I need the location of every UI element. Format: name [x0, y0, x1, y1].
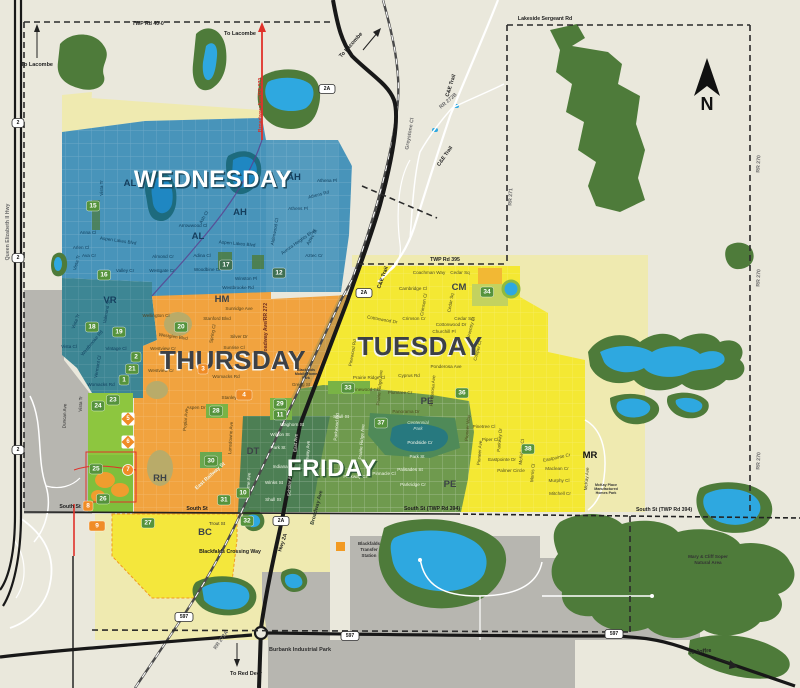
- svg-text:2A: 2A: [278, 518, 285, 524]
- area-code-bc: BC: [198, 527, 212, 538]
- street-label: Silver Dr: [230, 334, 248, 339]
- area-code-al: AL: [124, 178, 137, 189]
- svg-text:25: 25: [92, 466, 100, 473]
- area-code-dt: DT: [247, 446, 260, 457]
- svg-text:2: 2: [17, 255, 20, 261]
- zone-badge-2: 2: [131, 352, 141, 362]
- zone-badge-36: 36: [456, 388, 469, 398]
- svg-text:12: 12: [275, 270, 283, 277]
- svg-text:30: 30: [207, 458, 215, 465]
- area-code-al: AL: [192, 231, 205, 242]
- hwy-2a-shield: 2A: [356, 289, 372, 298]
- transfer-station-icon: [336, 542, 345, 551]
- road-label-broadway: Broadway Ave/RR 272: [258, 78, 264, 133]
- street-label: Palmer Circle: [497, 468, 525, 473]
- zone-badge-38: 38: [522, 444, 535, 454]
- zone-badge-37: 37: [375, 418, 388, 428]
- zone-badge-33: 33: [342, 383, 355, 393]
- friday-label: FRIDAY: [287, 455, 377, 482]
- street-label: Womacks Rd: [87, 382, 115, 387]
- zone-badge-30: 30: [205, 456, 218, 466]
- street-label: Cottonwood Dr: [436, 322, 467, 327]
- street-label: Almond Cr: [152, 254, 174, 259]
- road-label-south-st: South St: [186, 506, 208, 512]
- zone-badge-27: 27: [142, 518, 155, 528]
- svg-text:597: 597: [346, 633, 355, 639]
- svg-text:2: 2: [17, 447, 20, 453]
- street-label: Parkridge Cr: [400, 482, 426, 487]
- tuesday-label: TUESDAY: [357, 331, 482, 361]
- road-label-lakeside: Lakeside Sergeant Rd: [518, 16, 572, 22]
- street-label: Ava Cr: [82, 253, 96, 258]
- street-label: Murphy Cl: [549, 478, 570, 483]
- zone-badge-26: 26: [97, 494, 110, 504]
- svg-text:20: 20: [177, 324, 185, 331]
- street-label: Arrowwood Cl: [179, 223, 208, 228]
- street-label: Aztec Cr: [305, 253, 323, 258]
- svg-text:Park: Park: [302, 376, 310, 380]
- svg-text:38: 38: [524, 446, 532, 453]
- street-label: Gregg St: [292, 382, 311, 387]
- street-label: Cambridge Cl: [399, 286, 427, 291]
- svg-text:3: 3: [201, 366, 205, 373]
- street-label: Plumtree Cr: [388, 390, 413, 395]
- street-label: Vista Tr: [78, 396, 84, 412]
- street-label: Wellington Cl: [143, 313, 170, 318]
- zone-badge-19: 19: [113, 327, 126, 337]
- street-label: Winks St: [265, 480, 284, 485]
- street-label: Park St: [270, 445, 286, 450]
- zone-badge-31: 31: [218, 495, 231, 505]
- svg-text:597: 597: [180, 614, 189, 620]
- street-label: Prairie Ridge Cl: [353, 375, 385, 380]
- zone-badge-18: 18: [86, 322, 99, 332]
- thursday-label: THURSDAY: [160, 345, 306, 375]
- svg-text:2: 2: [134, 354, 138, 361]
- collection-schedule-map: Vista Tr Anna Cl Aspen Lakes Blvd Aspen …: [0, 0, 800, 688]
- svg-text:597: 597: [610, 631, 619, 637]
- roundabout: [255, 627, 267, 639]
- svg-text:10: 10: [239, 490, 247, 497]
- wednesday-label: WEDNESDAY: [134, 166, 292, 193]
- zone-badge-34: 34: [481, 287, 494, 297]
- zone-badge-8: 8: [83, 501, 93, 511]
- svg-text:31: 31: [220, 497, 228, 504]
- street-label: Trout St: [209, 521, 226, 526]
- hwy-2a-shield: 2A: [273, 517, 289, 526]
- road-label-crossing: Blackfalds Crossing Way: [199, 549, 261, 555]
- svg-text:2: 2: [17, 120, 20, 126]
- to-lacombe-label: To Lacombe: [224, 31, 256, 37]
- street-label: Wilson St: [270, 432, 290, 437]
- road-label-south394: South St (TWP Rd 394): [636, 507, 692, 513]
- area-code-cm: CM: [452, 282, 467, 293]
- area-code-pe: PE: [421, 396, 434, 407]
- soper-natural-area-label: Mary & Cliff Soper: [688, 554, 728, 559]
- road-label-rr271: RR 271: [508, 188, 515, 206]
- svg-text:28: 28: [212, 408, 220, 415]
- zone-badge-24: 24: [92, 401, 105, 411]
- road-label-qe2: Queen Elizabeth II Hwy: [5, 203, 11, 260]
- zone-badge-23: 23: [107, 395, 120, 405]
- street-label: Valley Cr: [116, 268, 135, 273]
- zone-badge-3: 3: [198, 364, 208, 374]
- street-label: Pondside Cr: [407, 440, 433, 445]
- svg-text:Homes Park: Homes Park: [596, 491, 617, 495]
- zone-badge-4: 4: [236, 390, 252, 400]
- area-code-vr: VR: [103, 295, 116, 306]
- zone-badge-1: 1: [119, 375, 129, 385]
- street-label: Pinetree Cl: [473, 424, 496, 429]
- svg-text:4: 4: [242, 392, 246, 399]
- zone-badge-17: 17: [220, 260, 233, 270]
- svg-text:2A: 2A: [324, 86, 331, 92]
- street-label: Woodbine Cl: [194, 267, 220, 272]
- svg-text:1: 1: [122, 377, 126, 384]
- svg-text:Station: Station: [362, 553, 377, 558]
- street-label: Mitchell Cr: [549, 491, 571, 496]
- street-label: Stanford Blvd: [203, 316, 231, 321]
- street-label: Piper Cl: [482, 437, 498, 442]
- svg-text:Park: Park: [413, 426, 423, 431]
- road-label-twp400: TWP Rd 40-0: [132, 21, 164, 27]
- road-label-rr270: RR 270: [756, 155, 763, 173]
- transfer-station-label: Blackfalds: [358, 541, 381, 546]
- street-label: Anna Cl: [80, 230, 96, 235]
- svg-text:Transfer: Transfer: [360, 547, 378, 552]
- zone-badge-11: 11: [274, 410, 287, 420]
- zone-badge-16: 16: [98, 270, 111, 280]
- street-label: Adina Cl: [193, 253, 210, 258]
- hwy-597-shield: 597: [175, 613, 193, 622]
- street-label: Westgate Cr: [149, 268, 175, 273]
- street-label: Coachman Way: [413, 270, 446, 275]
- hwy-2-shield: 2: [12, 119, 24, 128]
- street-label: Panorama Dr: [392, 409, 420, 414]
- map-canvas: Vista Tr Anna Cl Aspen Lakes Blvd Aspen …: [0, 0, 800, 688]
- zone-badge-12: 12: [273, 268, 286, 278]
- street-label: Cedar Sq: [450, 270, 470, 275]
- svg-text:17: 17: [222, 262, 230, 269]
- zone-badge-6: 6: [121, 435, 134, 448]
- area-code-rh: RH: [153, 473, 167, 484]
- svg-text:18: 18: [88, 324, 96, 331]
- svg-text:32: 32: [243, 518, 251, 525]
- zone-badge-21: 21: [126, 364, 139, 374]
- street-label: Athena Pl: [317, 178, 337, 183]
- svg-text:26: 26: [99, 496, 107, 503]
- to-red-deer-label: To Red Deer: [230, 671, 263, 677]
- svg-text:19: 19: [115, 329, 123, 336]
- svg-text:16: 16: [100, 272, 108, 279]
- road-label-south-st: South St: [59, 504, 81, 510]
- svg-text:24: 24: [94, 403, 102, 410]
- burbank-label: Burbank Industrial Park: [269, 647, 332, 653]
- street-label: Arlen Cl: [73, 245, 89, 250]
- zone-badge-5: 5: [121, 412, 134, 425]
- street-label: Athens Pl: [288, 206, 308, 211]
- area-code-mr: MR: [583, 450, 598, 461]
- svg-text:8: 8: [86, 503, 90, 510]
- area-code-pe: PE: [444, 479, 457, 490]
- street-label: Park St: [409, 454, 425, 459]
- road-label-rr270: RR 270: [756, 269, 763, 287]
- zone-badge-25: 25: [90, 464, 103, 474]
- road-label-rr270: RR 270: [756, 452, 763, 470]
- zone-badge-28: 28: [210, 406, 223, 416]
- hwy-2-shield: 2: [12, 446, 24, 455]
- street-label: Aspen Dr: [186, 405, 206, 410]
- zone-badge-7: 7: [123, 465, 134, 476]
- zone-badge-29: 29: [274, 399, 287, 409]
- street-label: Vintage Cl: [105, 346, 126, 351]
- hwy-597-shield: 597: [341, 632, 359, 641]
- street-label: Sunridge Ave: [225, 306, 253, 311]
- street-label: Shull St: [333, 414, 350, 419]
- hwy-2a-shield: 2A: [319, 85, 335, 94]
- road-label-twp395: TWP Rd 395: [430, 257, 460, 263]
- to-lacombe-label: To Lacombe: [21, 62, 53, 68]
- street-label: Cyprus Rd: [398, 373, 420, 378]
- svg-text:11: 11: [277, 412, 284, 419]
- street-label: Crimson Cr: [402, 316, 426, 321]
- svg-text:29: 29: [276, 401, 284, 408]
- street-label: Winston Pl: [235, 276, 257, 281]
- svg-text:Natural Area: Natural Area: [694, 560, 722, 565]
- street-label: Shull St: [265, 497, 282, 502]
- zone-badge-9: 9: [89, 521, 105, 531]
- street-label: Westbrooke Rd: [222, 285, 254, 290]
- svg-text:21: 21: [128, 366, 136, 373]
- svg-text:23: 23: [109, 397, 117, 404]
- road-label-south394: South St (TWP Rd 394): [404, 506, 460, 512]
- svg-text:9: 9: [95, 523, 99, 530]
- zone-badge-32: 32: [241, 516, 254, 526]
- svg-text:27: 27: [144, 520, 152, 527]
- area-code-hm: HM: [215, 294, 230, 305]
- zone-badge-20: 20: [175, 322, 188, 332]
- svg-text:2A: 2A: [361, 290, 368, 296]
- svg-text:36: 36: [458, 390, 466, 397]
- area-code-ah: AH: [233, 207, 247, 218]
- centennial-park-label: Centennial: [407, 420, 430, 425]
- svg-text:37: 37: [377, 420, 385, 427]
- zone-badge-15: 15: [87, 201, 100, 211]
- north-label: N: [701, 94, 714, 114]
- street-label: Pinewood Cl: [352, 387, 378, 392]
- street-label: East Ave: [293, 433, 299, 452]
- street-label: Vista Cl: [61, 344, 77, 349]
- street-label: Waghorn St: [280, 422, 305, 427]
- svg-text:33: 33: [344, 385, 352, 392]
- street-label: Maclean Cr: [545, 466, 569, 471]
- svg-text:15: 15: [89, 203, 97, 210]
- street-label: Palisades St: [397, 467, 423, 472]
- svg-text:34: 34: [483, 289, 491, 296]
- street-label: Duncan Ave: [62, 403, 68, 428]
- street-label: Eastpointe Dr: [488, 457, 516, 462]
- hwy-2-shield: 2: [12, 254, 24, 263]
- street-label: Vista Tr: [99, 180, 104, 196]
- area-code-ah: AH: [287, 172, 301, 183]
- street-label: Ponderosa Ave: [430, 364, 462, 369]
- hwy-597-shield: 597: [605, 630, 623, 639]
- zone-badge-10: 10: [237, 488, 250, 498]
